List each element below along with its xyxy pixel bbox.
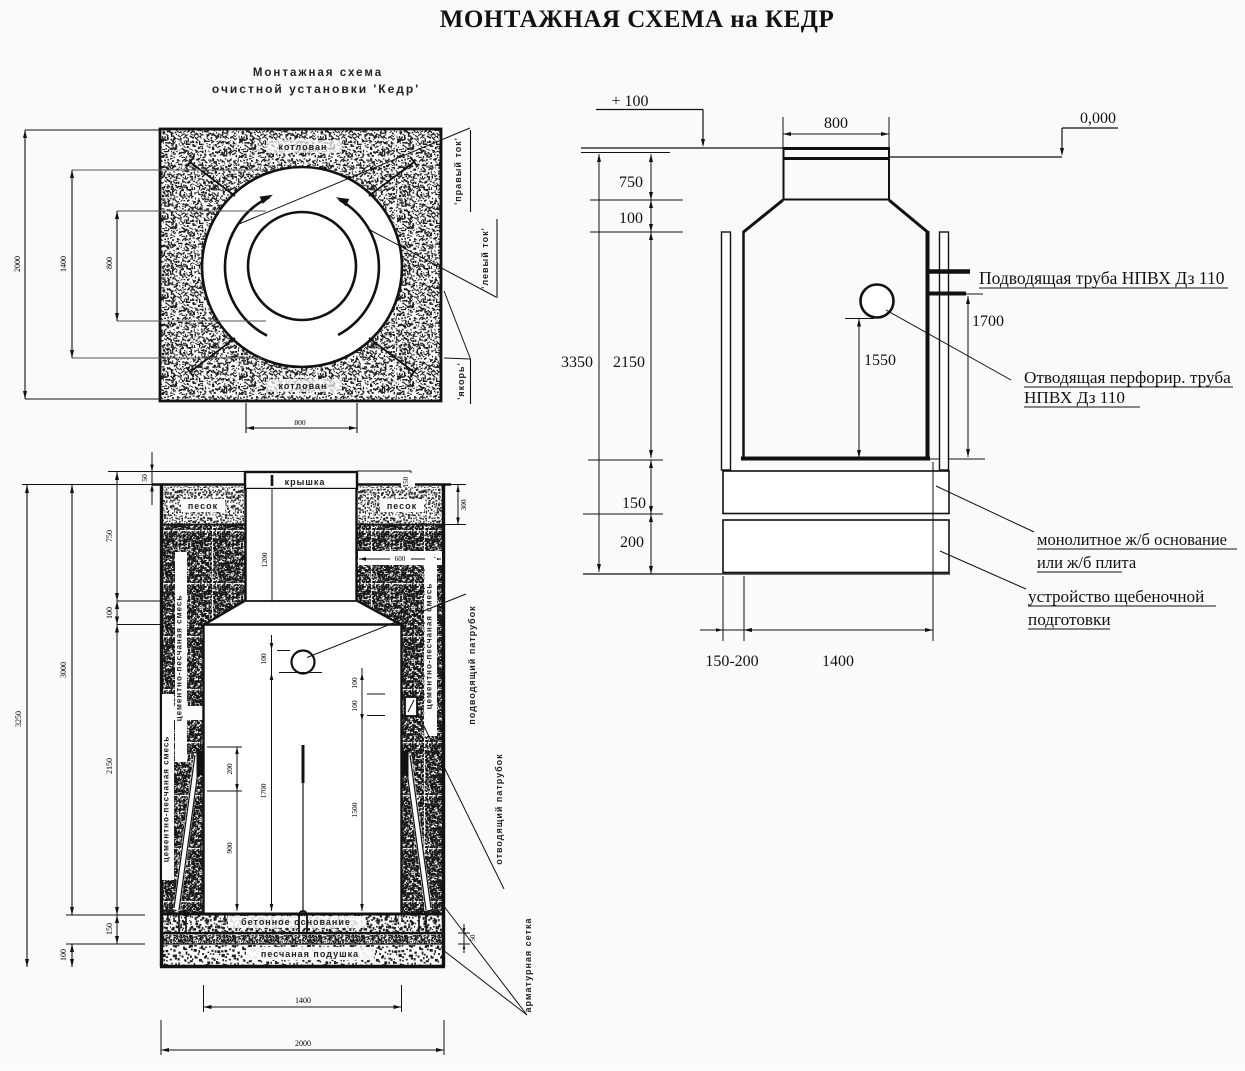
svg-text:800: 800	[105, 257, 114, 269]
svg-text:100: 100	[105, 607, 114, 619]
svg-text:50: 50	[140, 474, 149, 482]
svg-text:0,000: 0,000	[1080, 110, 1116, 127]
svg-text:1400: 1400	[295, 996, 311, 1005]
svg-text:200: 200	[620, 534, 644, 551]
svg-text:2150: 2150	[613, 354, 645, 371]
svg-text:Отводящая перфорир. труба: Отводящая перфорир. труба	[1024, 368, 1231, 387]
svg-text:100: 100	[619, 210, 643, 227]
svg-text:800: 800	[824, 115, 848, 132]
svg-text:1700: 1700	[972, 313, 1004, 330]
svg-text:устройство щебеночной: устройство щебеночной	[1028, 587, 1204, 606]
svg-text:+ 100: + 100	[611, 93, 648, 110]
svg-text:арматурная сетка: арматурная сетка	[523, 918, 533, 1013]
svg-text:1700: 1700	[259, 783, 268, 798]
svg-text:котлован: котлован	[279, 381, 328, 391]
svg-text:1400: 1400	[822, 653, 854, 670]
svg-text:1500: 1500	[350, 802, 359, 817]
svg-text:1400: 1400	[59, 256, 68, 272]
svg-text:900: 900	[225, 842, 234, 854]
svg-text:750: 750	[105, 530, 114, 542]
svg-text:котлован: котлован	[279, 142, 328, 152]
svg-text:150-200: 150-200	[705, 653, 758, 670]
svg-text:2150: 2150	[105, 758, 114, 774]
svg-text:отводящий патрубок: отводящий патрубок	[494, 753, 504, 864]
svg-text:200: 200	[225, 763, 234, 775]
svg-text:бетонное основание: бетонное основание	[241, 917, 351, 927]
svg-text:150: 150	[402, 476, 410, 487]
svg-text:песок: песок	[387, 501, 417, 511]
svg-text:2000: 2000	[295, 1039, 311, 1048]
svg-text:150: 150	[622, 495, 646, 512]
svg-text:Подводящая труба НПВХ Дз 110: Подводящая труба НПВХ Дз 110	[979, 268, 1225, 288]
svg-text:100: 100	[59, 949, 68, 961]
svg-text:песчаная подушка: песчаная подушка	[261, 949, 359, 959]
svg-text:100: 100	[350, 700, 359, 712]
svg-text:600: 600	[395, 555, 406, 563]
svg-text:150: 150	[105, 923, 114, 935]
svg-text:песок: песок	[188, 501, 218, 511]
svg-text:3350: 3350	[561, 354, 593, 371]
svg-text:цементно-песчаная смесь: цементно-песчаная смесь	[175, 595, 184, 722]
svg-text:3250: 3250	[14, 711, 23, 727]
svg-text:100: 100	[259, 653, 268, 665]
svg-text:750: 750	[619, 174, 643, 191]
svg-text:монолитное ж/б основание: монолитное ж/б основание	[1037, 530, 1227, 549]
svg-text:МОНТАЖНАЯ СХЕМА на КЕДР: МОНТАЖНАЯ СХЕМА на КЕДР	[440, 6, 834, 33]
svg-text:Монтажная схема: Монтажная схема	[253, 67, 383, 79]
svg-text:'левый ток': 'левый ток'	[480, 227, 490, 288]
svg-text:2000: 2000	[13, 256, 22, 272]
svg-text:подготовки: подготовки	[1028, 610, 1111, 629]
svg-text:3000: 3000	[59, 662, 68, 678]
svg-text:100: 100	[350, 677, 359, 689]
svg-text:цементно-песчаная смесь: цементно-песчаная смесь	[162, 736, 171, 863]
svg-text:1550: 1550	[864, 352, 896, 369]
svg-text:1200: 1200	[260, 552, 269, 567]
svg-text:300: 300	[459, 499, 468, 511]
svg-text:НПВХ Дз 110: НПВХ Дз 110	[1024, 388, 1125, 407]
svg-text:подводящий патрубок: подводящий патрубок	[467, 605, 477, 724]
svg-text:цементно-песчаная смесь: цементно-песчаная смесь	[425, 583, 434, 710]
svg-text:крышка: крышка	[285, 477, 326, 487]
svg-text:или ж/б плита: или ж/б плита	[1037, 553, 1137, 572]
svg-text:'якорь': 'якорь'	[456, 362, 466, 399]
svg-text:'правый ток': 'правый ток'	[453, 137, 463, 205]
svg-text:очистной установки 'Кедр': очистной установки 'Кедр'	[212, 82, 420, 96]
svg-text:800: 800	[294, 418, 306, 427]
